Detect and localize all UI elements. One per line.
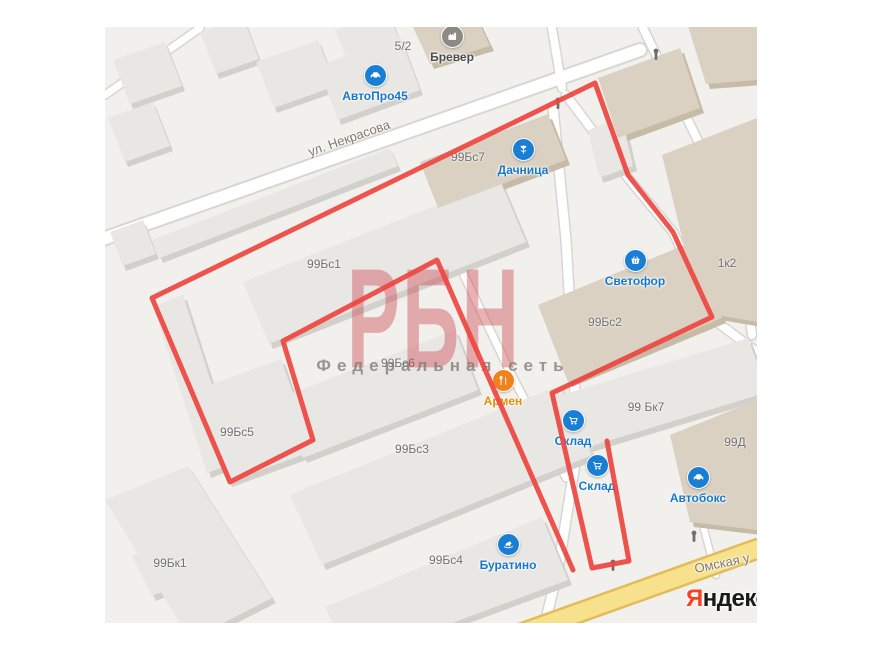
map-screenshot: 5/2 99Бс7 99Бс1 99Бс2 1к2 99Бс6 99Бс5 99… <box>0 0 870 652</box>
poi-label: Дачница <box>453 163 593 177</box>
building-label: 99Бк1 <box>153 556 186 570</box>
yandex-logo-first-letter: Я <box>686 585 703 612</box>
building-label: 99Бс1 <box>307 257 341 271</box>
basket-icon <box>624 249 647 272</box>
barrier-icon <box>553 97 563 115</box>
barrier-icon <box>608 559 618 577</box>
poi-buratino[interactable]: Буратино <box>438 533 578 572</box>
factory-icon <box>441 27 464 48</box>
building-label: 1к2 <box>718 256 737 270</box>
yandex-logo-rest: ндекс <box>703 585 757 612</box>
poi-avtopro45[interactable]: АвтоПро45 <box>305 64 445 103</box>
poi-dachnitsa[interactable]: Дачница <box>453 138 593 177</box>
poi-label: Буратино <box>438 558 578 572</box>
restaurant-icon <box>492 369 515 392</box>
building-label: 99Д <box>724 435 745 449</box>
poi-label: Склад <box>503 434 643 448</box>
poi-armen[interactable]: Армен <box>433 369 573 408</box>
poi-avtoboks[interactable]: Автобокс <box>628 466 757 505</box>
poi-label: Автобокс <box>628 491 757 505</box>
map-viewport[interactable]: 5/2 99Бс7 99Бс1 99Бс2 1к2 99Бс6 99Бс5 99… <box>105 27 757 623</box>
cart-icon <box>562 409 585 432</box>
barrier-icon <box>651 48 661 66</box>
yandex-logo[interactable]: Яндекс <box>686 585 757 613</box>
building-label: 99Бс5 <box>220 425 254 439</box>
poi-label: АвтоПро45 <box>305 89 445 103</box>
poi-label: Бревер <box>382 50 522 64</box>
poi-label: Светофор <box>565 274 705 288</box>
poi-brever[interactable]: Бревер <box>382 27 522 64</box>
rocking-horse-icon <box>497 533 520 556</box>
building-label: 99Бс3 <box>395 442 429 456</box>
building-label: 99Бс2 <box>588 315 622 329</box>
poi-label: Армен <box>433 394 573 408</box>
car-icon <box>364 64 387 87</box>
poi-sklad-1[interactable]: Склад <box>503 409 643 448</box>
cart-icon <box>586 454 609 477</box>
car-icon <box>687 466 710 489</box>
map-world: 5/2 99Бс7 99Бс1 99Бс2 1к2 99Бс6 99Бс5 99… <box>105 27 757 623</box>
poi-svetofor[interactable]: Светофор <box>565 249 705 288</box>
barrier-icon <box>689 530 699 548</box>
flower-icon <box>512 138 535 161</box>
